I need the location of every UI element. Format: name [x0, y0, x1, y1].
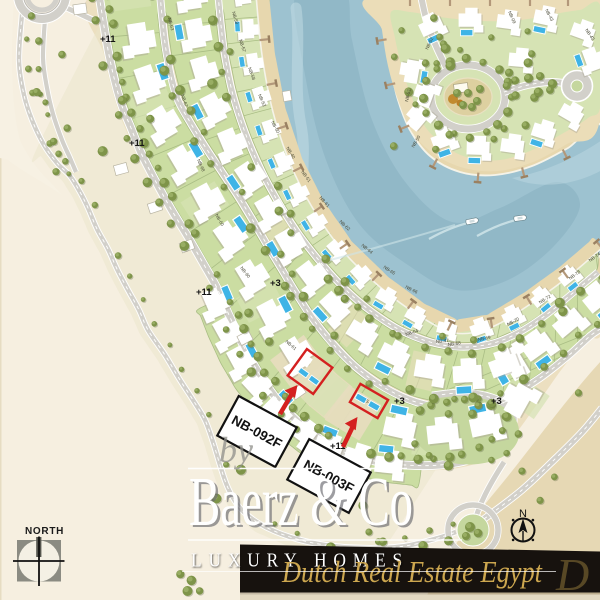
- svg-text:+11: +11: [196, 287, 212, 298]
- svg-text:+3: +3: [270, 278, 281, 289]
- svg-text:+3: +3: [491, 396, 502, 407]
- svg-text:+11: +11: [129, 138, 145, 149]
- svg-text:NORTH: NORTH: [25, 526, 64, 537]
- svg-text:D: D: [555, 549, 589, 600]
- svg-text:+3: +3: [394, 396, 405, 407]
- svg-text:Baerz & Co: Baerz & Co: [189, 464, 413, 541]
- svg-text:+11: +11: [100, 34, 116, 45]
